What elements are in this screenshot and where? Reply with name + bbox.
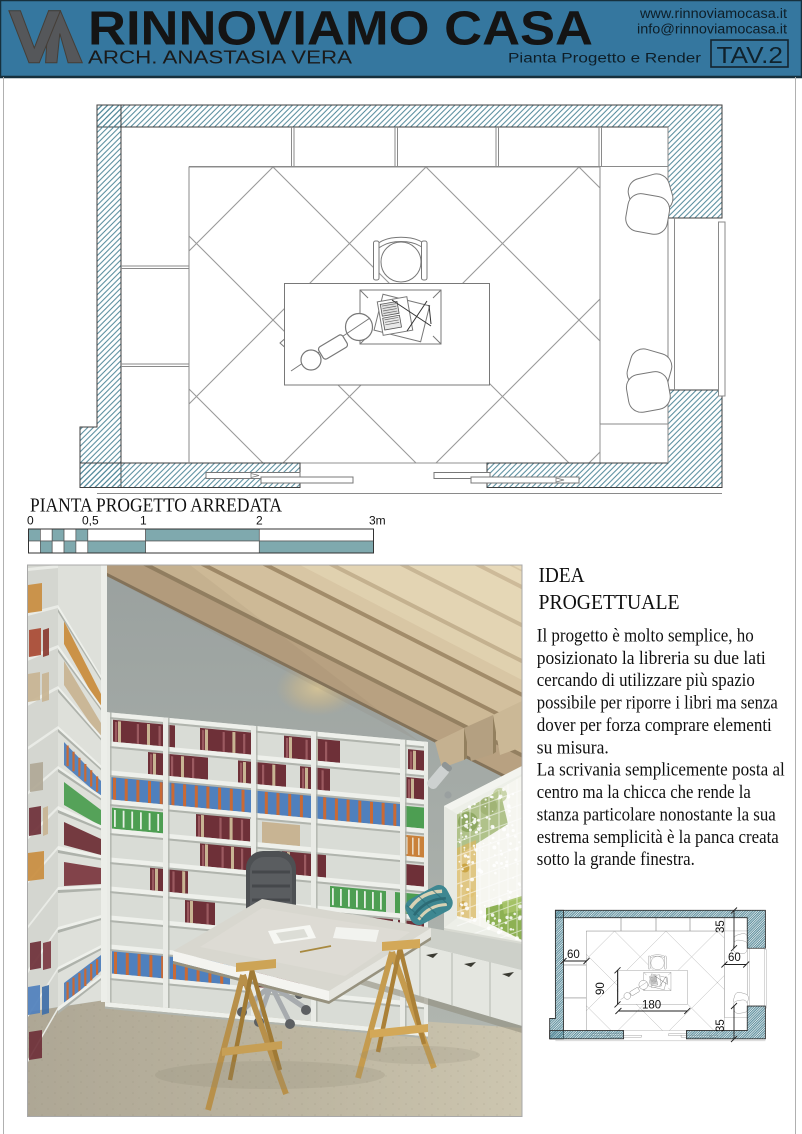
svg-text:ARCH. ANASTASIA VERA: ARCH. ANASTASIA VERA xyxy=(88,48,352,68)
svg-text:0: 0 xyxy=(27,514,34,528)
svg-text:PIANTA PROGETTO ARREDATA: PIANTA PROGETTO ARREDATA xyxy=(30,495,282,517)
svg-text:TAV.2: TAV.2 xyxy=(717,42,784,68)
svg-text:Il progetto è molto semplice,: Il progetto è molto semplice, ho xyxy=(537,626,754,647)
svg-text:35: 35 xyxy=(715,920,727,933)
svg-text:posizionato la libreria su due: posizionato la libreria su due lati xyxy=(537,648,766,669)
svg-text:sotto la grande finestra.: sotto la grande finestra. xyxy=(537,849,695,870)
svg-text:35: 35 xyxy=(715,1019,727,1032)
svg-text:possibile per riporre i libri: possibile per riporre i libri ma senza xyxy=(537,693,778,714)
svg-text:La scrivania semplicemente po: La scrivania semplicemente posta al xyxy=(537,760,785,781)
svg-text:90: 90 xyxy=(595,982,607,995)
svg-text:su misura.: su misura. xyxy=(537,737,609,758)
svg-text:estrema semplicità è la panca: estrema semplicità è la panca creata xyxy=(537,827,779,848)
svg-text:60: 60 xyxy=(567,949,580,961)
svg-text:stanza particolare nonostante: stanza particolare nonostante la sua xyxy=(537,804,776,825)
svg-text:info@rinnoviamocasa.it: info@rinnoviamocasa.it xyxy=(637,22,787,37)
svg-text:3m: 3m xyxy=(369,514,386,528)
svg-text:60: 60 xyxy=(728,952,741,964)
svg-text:dover per forza comprare eleme: dover per forza comprare elementi xyxy=(537,715,772,736)
svg-text:Pianta Progetto e Render: Pianta Progetto e Render xyxy=(508,51,702,66)
svg-text:1: 1 xyxy=(140,514,147,528)
svg-text:centro ma la chicca che rende: centro ma la chicca che rende la xyxy=(537,782,751,803)
svg-text:0,5: 0,5 xyxy=(82,514,99,528)
svg-text:www.rinnoviamocasa.it: www.rinnoviamocasa.it xyxy=(639,6,787,21)
svg-text:cercando di utilizzare più spa: cercando di utilizzare più spazio xyxy=(537,670,755,691)
svg-text:IDEA: IDEA xyxy=(539,563,586,587)
svg-text:2: 2 xyxy=(256,514,263,528)
svg-text:180: 180 xyxy=(642,1000,661,1012)
svg-text:PROGETTUALE: PROGETTUALE xyxy=(539,590,680,614)
